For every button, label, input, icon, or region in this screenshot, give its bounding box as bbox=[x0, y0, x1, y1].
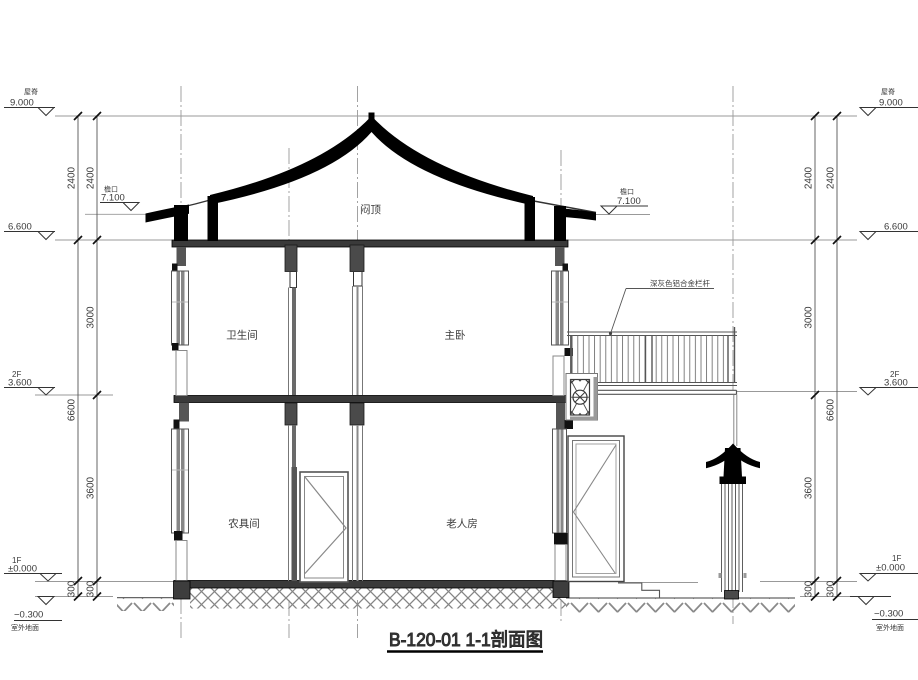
svg-text:6600: 6600 bbox=[67, 398, 78, 421]
svg-text:老人房: 老人房 bbox=[446, 517, 478, 530]
svg-text:9.000: 9.000 bbox=[879, 98, 903, 109]
svg-text:300: 300 bbox=[86, 580, 97, 597]
svg-text:卫生间: 卫生间 bbox=[226, 329, 258, 342]
svg-text:300: 300 bbox=[826, 580, 837, 597]
svg-text:±0.000: ±0.000 bbox=[8, 564, 37, 575]
svg-text:−0.300: −0.300 bbox=[874, 609, 903, 620]
svg-text:300: 300 bbox=[804, 580, 815, 597]
svg-text:2400: 2400 bbox=[67, 166, 78, 189]
svg-text:3600: 3600 bbox=[804, 476, 815, 499]
svg-text:300: 300 bbox=[67, 580, 78, 597]
svg-text:农具间: 农具间 bbox=[228, 517, 260, 530]
svg-text:7.100: 7.100 bbox=[617, 196, 641, 207]
svg-text:3.600: 3.600 bbox=[8, 378, 32, 389]
svg-text:2400: 2400 bbox=[86, 166, 97, 189]
svg-text:3000: 3000 bbox=[804, 306, 815, 329]
svg-text:B-120-01 1-1剖面图: B-120-01 1-1剖面图 bbox=[389, 629, 543, 650]
svg-text:3000: 3000 bbox=[86, 306, 97, 329]
svg-text:−0.300: −0.300 bbox=[14, 610, 43, 621]
svg-text:主卧: 主卧 bbox=[445, 329, 466, 342]
svg-text:深灰色铝合金栏杆: 深灰色铝合金栏杆 bbox=[650, 278, 710, 288]
svg-text:室外地面: 室外地面 bbox=[11, 623, 39, 632]
svg-text:6.600: 6.600 bbox=[8, 222, 32, 233]
svg-text:3.600: 3.600 bbox=[884, 378, 908, 389]
svg-text:室外地面: 室外地面 bbox=[876, 623, 904, 632]
svg-text:6.600: 6.600 bbox=[884, 222, 908, 233]
svg-text:檐口: 檐口 bbox=[620, 187, 634, 196]
svg-text:闷顶: 闷顶 bbox=[360, 203, 381, 216]
svg-text:7.100: 7.100 bbox=[101, 193, 125, 204]
svg-text:屋脊: 屋脊 bbox=[881, 87, 895, 96]
svg-text:9.000: 9.000 bbox=[10, 98, 34, 109]
svg-text:±0.000: ±0.000 bbox=[876, 563, 905, 574]
svg-text:3600: 3600 bbox=[86, 476, 97, 499]
svg-text:2400: 2400 bbox=[826, 166, 837, 189]
svg-text:6600: 6600 bbox=[826, 398, 837, 421]
svg-text:屋脊: 屋脊 bbox=[24, 87, 38, 96]
svg-text:2400: 2400 bbox=[804, 166, 815, 189]
